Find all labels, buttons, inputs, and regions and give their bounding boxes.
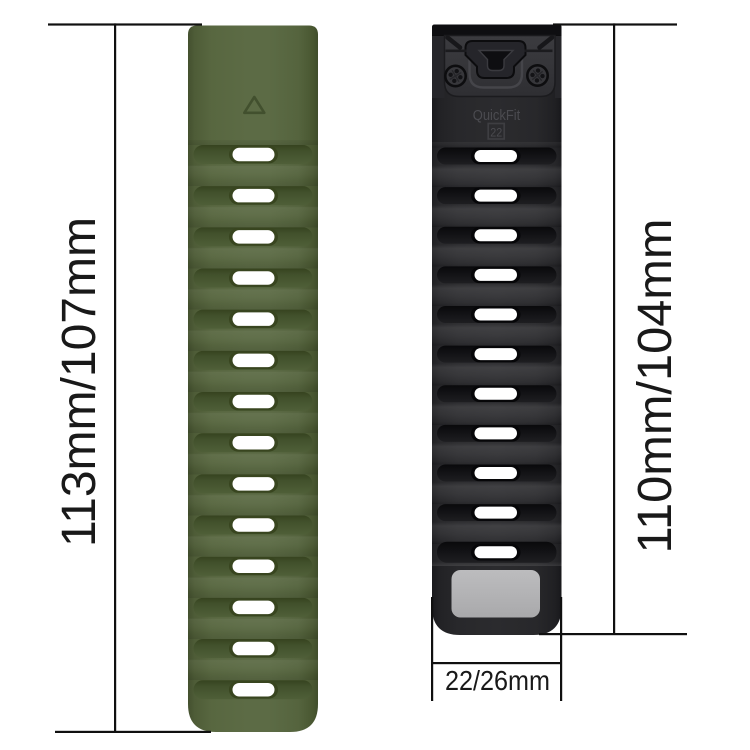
svg-text:QuickFit: QuickFit bbox=[473, 108, 521, 124]
svg-text:22: 22 bbox=[490, 125, 502, 139]
svg-text:110mm/104mm: 110mm/104mm bbox=[629, 219, 682, 554]
svg-text:113mm/107mm: 113mm/107mm bbox=[53, 217, 106, 547]
svg-text:22/26mm: 22/26mm bbox=[445, 665, 550, 696]
